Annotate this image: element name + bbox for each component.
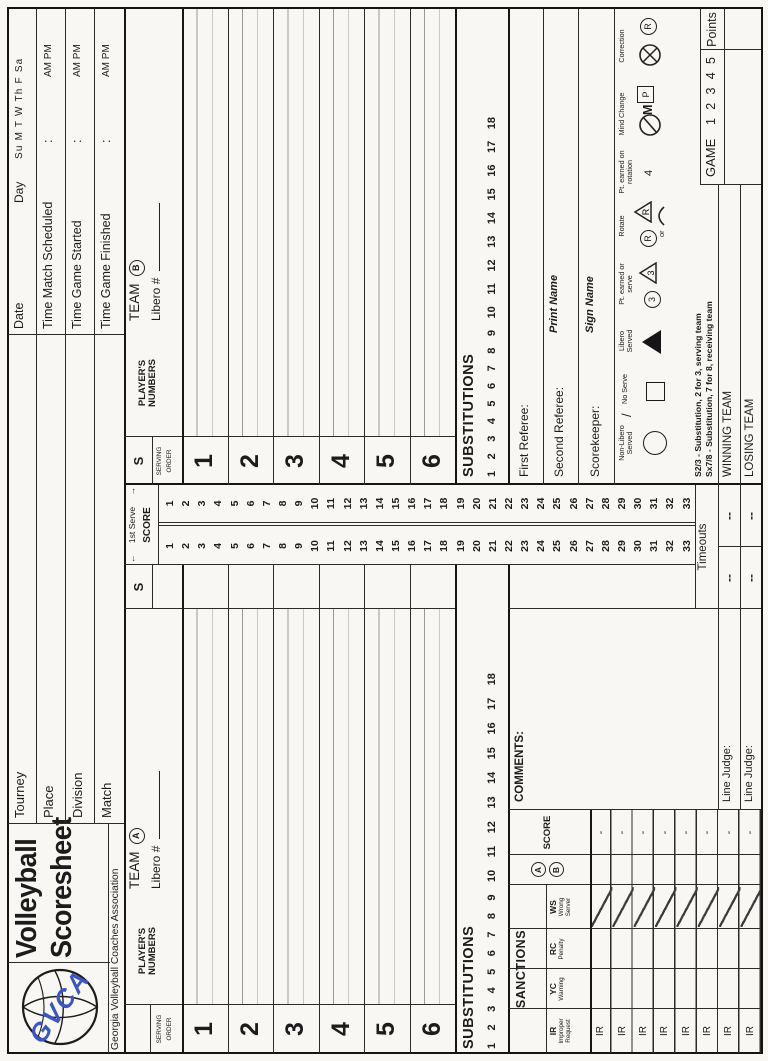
sanctions-badge-b: B bbox=[549, 863, 564, 878]
rotate-circle-r-icon: R bbox=[640, 230, 657, 247]
team-b-players-header: PLAYER'S NUMBERS bbox=[138, 335, 158, 431]
list-item: 5 bbox=[364, 437, 410, 485]
list-item: 10 bbox=[486, 306, 498, 318]
first-serve-header: ← 1st Serve → bbox=[127, 487, 137, 563]
sanctions-badge-a: A bbox=[531, 863, 546, 878]
team-a-serving-order-header: SERVING ORDER bbox=[155, 1006, 174, 1052]
legend-rotate-label: Rotate bbox=[618, 203, 626, 249]
timeout-dash-b1: -- bbox=[718, 485, 740, 547]
list-item: 13 bbox=[356, 527, 372, 565]
list-item: 24 bbox=[533, 485, 549, 522]
volleyball-scoresheet: GVCA Volleyball Scoresheet Georgia Volle… bbox=[0, 0, 768, 1061]
team-a-libero-blank bbox=[159, 771, 160, 839]
list-item: 7 bbox=[486, 932, 498, 938]
list-item: 1 bbox=[162, 485, 178, 522]
field-match-label: Match bbox=[100, 783, 114, 818]
list-item: 4 bbox=[319, 437, 365, 485]
team-b-substitutions-label: SUBSTITUTIONS bbox=[462, 354, 477, 477]
list-item: 22 bbox=[501, 485, 517, 522]
list-item: 4 bbox=[486, 418, 498, 424]
team-a-badge: A bbox=[129, 828, 145, 844]
list-item: IR bbox=[697, 1009, 718, 1053]
list-item: 19 bbox=[453, 527, 469, 565]
scorekeeper-label: Scorekeeper: bbox=[589, 406, 602, 477]
time-started-colon: : bbox=[71, 140, 84, 143]
list-item: 25 bbox=[549, 527, 565, 565]
list-item: 6 bbox=[486, 383, 498, 389]
list-item: 9 bbox=[291, 485, 307, 522]
list-item: 2 bbox=[486, 1024, 498, 1030]
rc-abbr: RC bbox=[548, 929, 558, 969]
list-item: 2 bbox=[486, 453, 498, 459]
team-a-s-header: S bbox=[124, 565, 152, 609]
legend-non-libero-label: Non-Libero Served bbox=[618, 417, 635, 469]
list-item: 9 bbox=[291, 527, 307, 565]
list-item: 4 bbox=[210, 527, 226, 565]
gvca-logo: GVCA bbox=[10, 963, 110, 1051]
time-game-started-label: Time Game Started bbox=[71, 220, 84, 329]
time-finished-ampm: AM PM bbox=[102, 44, 113, 77]
list-item: - bbox=[611, 810, 632, 855]
game-numbers: 12345 bbox=[704, 57, 718, 125]
sanctions-col-rc-header: RC Penalty bbox=[548, 929, 565, 969]
list-item: 10 bbox=[307, 485, 323, 522]
no-serve-square-icon bbox=[646, 382, 665, 401]
first-serve-label: 1st Serve bbox=[127, 507, 137, 543]
legend-libero-served-label: Libero Served bbox=[618, 319, 635, 363]
list-item: 27 bbox=[582, 485, 598, 522]
logo-letters: GVCA bbox=[23, 964, 96, 1049]
correction-circle-x-icon bbox=[638, 43, 662, 67]
list-item: 5 bbox=[227, 485, 243, 522]
list-item: 25 bbox=[549, 485, 565, 522]
list-item: 7 bbox=[259, 527, 275, 565]
list-item: 17 bbox=[420, 485, 436, 522]
rc-sub: Penalty bbox=[558, 929, 565, 969]
time-started-ampm: AM PM bbox=[73, 44, 84, 77]
list-item: 28 bbox=[598, 527, 614, 565]
team-b-badge: B bbox=[129, 260, 145, 276]
list-item: 1 bbox=[486, 1043, 498, 1049]
list-item: 2 bbox=[178, 527, 194, 565]
legend-pt-earned-rotation-label: Pt. earned on rotation bbox=[618, 145, 635, 199]
team-a-libero-label: Libero # bbox=[149, 846, 163, 889]
first-referee-label: First Referee: bbox=[518, 404, 531, 477]
list-item: 9 bbox=[486, 895, 498, 901]
team-a-label: TEAM A bbox=[128, 828, 145, 889]
team-b-label: TEAM B bbox=[128, 260, 145, 321]
list-item: 22 bbox=[501, 527, 517, 565]
sanctions-col-ws-header: WS Wrong Server bbox=[548, 885, 572, 929]
list-item: 1 bbox=[182, 437, 228, 485]
print-name-label: Print Name bbox=[549, 275, 561, 333]
sanctions-ws-slashes bbox=[591, 887, 760, 927]
association-name: Georgia Volleyball Coaches Association bbox=[111, 869, 122, 1050]
list-item: 8 bbox=[486, 913, 498, 919]
pt-earned-circle-3-icon: 3 bbox=[644, 291, 661, 308]
order-word: ORDER bbox=[166, 1017, 173, 1040]
list-item: - bbox=[740, 810, 761, 855]
list-item: IR bbox=[675, 1009, 696, 1053]
list-item: 12 bbox=[486, 259, 498, 271]
list-item: 6 bbox=[243, 485, 259, 522]
list-item: 14 bbox=[486, 772, 498, 784]
list-item: 12 bbox=[340, 527, 356, 565]
list-item: 9 bbox=[486, 330, 498, 336]
list-item: 30 bbox=[630, 485, 646, 522]
list-item: 30 bbox=[630, 527, 646, 565]
list-item: 26 bbox=[566, 485, 582, 522]
team-b-serving-order-header: SERVING ORDER bbox=[155, 438, 174, 484]
list-item: 13 bbox=[486, 796, 498, 808]
list-item: 15 bbox=[388, 527, 404, 565]
team-a-word: TEAM bbox=[127, 851, 142, 889]
list-item: 16 bbox=[404, 485, 420, 522]
list-item: 5 bbox=[704, 57, 718, 64]
list-item: - bbox=[675, 810, 696, 855]
list-item: 8 bbox=[275, 485, 291, 522]
libero-served-triangle-icon bbox=[640, 329, 663, 355]
list-item: 5 bbox=[364, 1005, 410, 1053]
list-item: 23 bbox=[517, 527, 533, 565]
team-b-s-header: S bbox=[124, 437, 152, 485]
list-item: 12 bbox=[340, 485, 356, 522]
legend-mind-change-label: Mind Change bbox=[618, 87, 626, 141]
list-item: 14 bbox=[372, 485, 388, 522]
list-item: 14 bbox=[486, 212, 498, 224]
list-item: 17 bbox=[420, 527, 436, 565]
time-scheduled-ampm: AM PM bbox=[44, 44, 55, 77]
list-item: 6 bbox=[410, 437, 456, 485]
list-item: 5 bbox=[486, 969, 498, 975]
time-scheduled-colon: : bbox=[42, 140, 55, 143]
timeouts-label: Timeouts bbox=[697, 485, 709, 609]
list-item: 15 bbox=[486, 188, 498, 200]
list-item: 10 bbox=[486, 870, 498, 882]
list-item: 23 bbox=[517, 485, 533, 522]
list-item: 5 bbox=[486, 400, 498, 406]
list-item: IR bbox=[633, 1009, 654, 1053]
list-item: 18 bbox=[486, 673, 498, 685]
sanctions-score-header: SCORE bbox=[542, 810, 553, 855]
list-item: 26 bbox=[566, 527, 582, 565]
list-item: - bbox=[590, 810, 611, 855]
list-item: 16 bbox=[404, 527, 420, 565]
field-division-label: Division bbox=[71, 772, 85, 818]
list-item: 16 bbox=[486, 722, 498, 734]
second-referee-label: Second Referee: bbox=[553, 387, 566, 477]
list-item: - bbox=[697, 810, 718, 855]
list-item: 2 bbox=[228, 437, 274, 485]
date-label: Date bbox=[13, 303, 26, 329]
team-b-libero-label: Libero # bbox=[149, 278, 163, 321]
list-item: 4 bbox=[486, 987, 498, 993]
list-item: 11 bbox=[486, 846, 498, 858]
list-item: 13 bbox=[356, 485, 372, 522]
list-item: 1 bbox=[486, 471, 498, 477]
line-judge-1-label: Line Judge: bbox=[722, 745, 734, 802]
list-item: 18 bbox=[486, 117, 498, 129]
list-item: 21 bbox=[485, 485, 501, 522]
team-a-substitutions-label: SUBSTITUTIONS bbox=[462, 926, 477, 1049]
list-item: 33 bbox=[679, 485, 695, 522]
list-item: 3 bbox=[486, 1006, 498, 1012]
day-label: Day bbox=[13, 182, 26, 203]
yc-sub: Warning bbox=[558, 969, 565, 1009]
list-item: 13 bbox=[486, 236, 498, 248]
comments-label: COMMENTS: bbox=[514, 731, 526, 802]
list-item: 2 bbox=[178, 485, 194, 522]
list-item: 15 bbox=[486, 747, 498, 759]
list-item: 2 bbox=[228, 1005, 274, 1053]
list-item: 17 bbox=[486, 141, 498, 153]
timeout-dash-a2: -- bbox=[740, 547, 761, 609]
list-item: 10 bbox=[307, 527, 323, 565]
sanctions-col-ir-header: IR Improper Request bbox=[548, 1009, 572, 1053]
team-a-substitution-numbers: 123456789101112131415161718 bbox=[486, 673, 498, 1049]
list-item: 33 bbox=[679, 527, 695, 565]
sanctions-score-rows: -------- bbox=[590, 810, 761, 855]
non-libero-served-circle-icon bbox=[643, 431, 667, 455]
list-item: 5 bbox=[227, 527, 243, 565]
ir-sub: Improper Request bbox=[558, 1011, 572, 1051]
scanned-scoresheet-page: GVCA Volleyball Scoresheet Georgia Volle… bbox=[0, 0, 768, 1061]
time-match-scheduled-label: Time Match Scheduled bbox=[42, 202, 55, 329]
list-item: 19 bbox=[453, 485, 469, 522]
serving-word: SERVING bbox=[156, 447, 163, 476]
ir-abbr: IR bbox=[548, 1009, 558, 1053]
rotate-triangle-r-icon: R bbox=[633, 201, 653, 223]
list-item: 6 bbox=[486, 950, 498, 956]
arrow-right-icon: → bbox=[127, 487, 137, 496]
list-item: 32 bbox=[662, 527, 678, 565]
score-column-team-b: 1234567891011121314151617181920212223242… bbox=[162, 485, 695, 522]
list-item: 20 bbox=[469, 527, 485, 565]
list-item: 31 bbox=[646, 485, 662, 522]
ws-abbr: WS bbox=[548, 885, 558, 929]
list-item: 8 bbox=[486, 348, 498, 354]
title-line1: Volleyball bbox=[12, 839, 42, 958]
field-tourney-label: Tourney bbox=[13, 772, 27, 818]
mind-change-boxed-p-icon: P bbox=[637, 86, 654, 103]
legend-slash: / bbox=[620, 413, 634, 417]
list-item: 24 bbox=[533, 527, 549, 565]
sanctions-ab-header: A B bbox=[528, 855, 564, 885]
list-item: 2 bbox=[704, 103, 718, 110]
list-item: 20 bbox=[469, 485, 485, 522]
timeout-dash-a1: -- bbox=[718, 547, 740, 609]
list-item: 4 bbox=[319, 1005, 365, 1053]
list-item: - bbox=[654, 810, 675, 855]
list-item: 12 bbox=[486, 821, 498, 833]
list-item: 18 bbox=[436, 485, 452, 522]
team-a-libero: Libero # bbox=[150, 771, 163, 889]
list-item: 3 bbox=[704, 88, 718, 95]
day-abbreviations: Su M T W Th F Sa bbox=[15, 58, 26, 159]
list-item: 29 bbox=[614, 527, 630, 565]
correction-circle-r-icon: R bbox=[640, 18, 657, 35]
title-line2: Scoresheet bbox=[47, 817, 77, 958]
losing-team-label: LOSING TEAM bbox=[744, 399, 756, 477]
list-item: 16 bbox=[486, 164, 498, 176]
score-column-team-a: 1234567891011121314151617181920212223242… bbox=[162, 527, 695, 565]
volleyball-icon: GVCA bbox=[10, 963, 110, 1051]
game-label: GAME bbox=[704, 139, 718, 177]
list-item: 4 bbox=[704, 72, 718, 79]
list-item: 8 bbox=[275, 527, 291, 565]
mind-change-circle-slash-icon bbox=[638, 113, 662, 137]
list-item: 4 bbox=[210, 485, 226, 522]
list-item: IR bbox=[611, 1009, 632, 1053]
list-item: 32 bbox=[662, 485, 678, 522]
list-item: 27 bbox=[582, 527, 598, 565]
list-item: - bbox=[633, 810, 654, 855]
legend-correction-label: Correction bbox=[618, 17, 626, 75]
field-place-label: Place bbox=[42, 785, 56, 818]
list-item: 11 bbox=[323, 485, 339, 522]
list-item: 15 bbox=[388, 485, 404, 522]
legend-pt-earned-serve-label: Pt. earned or serve bbox=[618, 255, 635, 313]
sanctions-title: SANCTIONS bbox=[514, 885, 528, 1053]
ws-sub: Wrong Server bbox=[558, 890, 572, 924]
serving-word: SERVING bbox=[156, 1015, 163, 1044]
list-item: - bbox=[718, 810, 739, 855]
arrow-left-icon: ← bbox=[127, 554, 137, 563]
sign-name-label: Sign Name bbox=[585, 276, 597, 333]
time-game-finished-label: Time Game Finished bbox=[100, 213, 113, 329]
list-item: 18 bbox=[436, 527, 452, 565]
list-item: IR bbox=[654, 1009, 675, 1053]
pt-rotation-value: 4 bbox=[644, 170, 656, 176]
team-a-players-header: PLAYER'S NUMBERS bbox=[138, 903, 158, 999]
list-item: 3 bbox=[486, 436, 498, 442]
legend-or-label: or bbox=[658, 230, 666, 237]
list-item: 7 bbox=[486, 365, 498, 371]
list-item: 6 bbox=[410, 1005, 456, 1053]
triangle-r-text: R bbox=[641, 208, 651, 215]
rotate-arc-icon bbox=[656, 205, 666, 227]
team-b-libero: Libero # bbox=[150, 203, 163, 321]
triangle-3-text: 3 bbox=[646, 270, 656, 275]
points-label: Points bbox=[700, 9, 724, 50]
pt-earned-triangle-3-icon: 3 bbox=[638, 262, 658, 284]
list-item: 1 bbox=[182, 1005, 228, 1053]
note-sx78: Sx7/8 - Substitution, 7 for 8, receiving… bbox=[705, 301, 714, 477]
list-item: 3 bbox=[194, 485, 210, 522]
list-item: 3 bbox=[273, 1005, 319, 1053]
list-item: 29 bbox=[614, 485, 630, 522]
list-item: 3 bbox=[273, 437, 319, 485]
list-item: 17 bbox=[486, 698, 498, 710]
list-item: 3 bbox=[194, 527, 210, 565]
order-word: ORDER bbox=[166, 449, 173, 472]
line-judge-2-label: Line Judge: bbox=[744, 745, 756, 802]
list-item: IR bbox=[718, 1009, 739, 1053]
team-b-word: TEAM bbox=[127, 283, 142, 321]
team-b-libero-blank bbox=[159, 203, 160, 271]
list-item: 21 bbox=[485, 527, 501, 565]
list-item: IR bbox=[590, 1009, 611, 1053]
score-label: SCORE bbox=[142, 485, 153, 565]
list-item: 31 bbox=[646, 527, 662, 565]
sanctions-col-yc-header: YC Warning bbox=[548, 969, 565, 1009]
sanctions-ir-rows: IRIRIRIRIRIRIRIR bbox=[590, 1009, 761, 1053]
timeout-dash-b2: -- bbox=[740, 485, 761, 547]
note-s23: S2/3 - Substitution, 2 for 3, serving te… bbox=[694, 313, 703, 477]
list-item: 1 bbox=[704, 118, 718, 125]
list-item: 6 bbox=[243, 527, 259, 565]
list-item: 11 bbox=[486, 283, 498, 295]
team-b-substitution-numbers: 123456789101112131415161718 bbox=[486, 117, 498, 477]
time-finished-colon: : bbox=[100, 140, 113, 143]
winning-team-label: WINNING TEAM bbox=[722, 391, 734, 477]
legend-no-serve-label: No Serve bbox=[621, 367, 629, 411]
yc-abbr: YC bbox=[548, 969, 558, 1009]
list-item: IR bbox=[740, 1009, 761, 1053]
list-item: 11 bbox=[323, 527, 339, 565]
mind-change-m: M bbox=[642, 105, 655, 115]
list-item: 1 bbox=[162, 527, 178, 565]
list-item: 28 bbox=[598, 485, 614, 522]
list-item: 7 bbox=[259, 485, 275, 522]
list-item: 14 bbox=[372, 527, 388, 565]
